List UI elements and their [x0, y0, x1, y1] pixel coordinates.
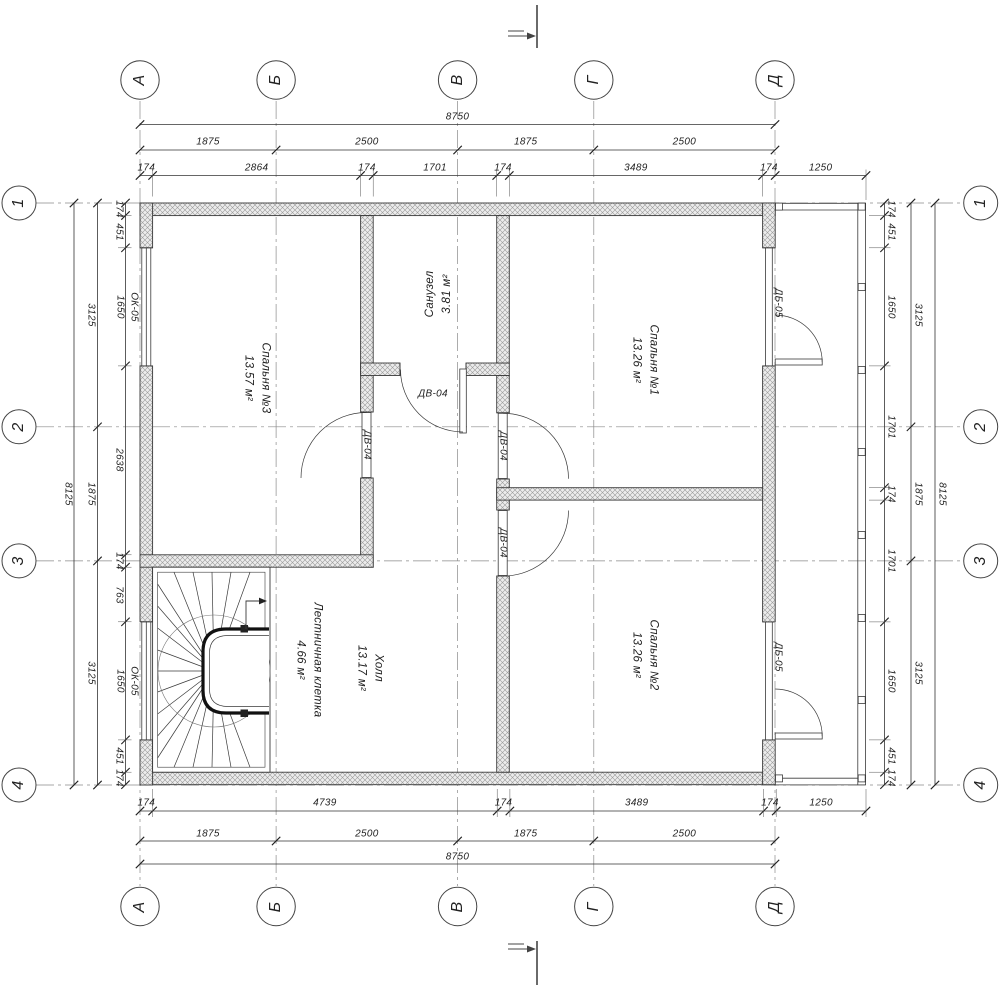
dim-left-span-0: 3125: [86, 303, 97, 326]
section-mark-top-icon: [508, 5, 537, 48]
balcony-door-tag-1: ДБ-05: [772, 288, 783, 318]
window-tag-bottom: ОК-05 1650: [113, 666, 140, 696]
section-mark-bottom-icon: [508, 941, 537, 985]
room-name: Спальня №1: [644, 325, 661, 396]
room-label-bedroom2: Спальня №2 13.26 м²: [627, 620, 662, 691]
floor-plan-svg: [0, 0, 1000, 989]
room-area: 13.17 м²: [352, 645, 369, 691]
axis-bubble-col-g-top: Г: [585, 75, 603, 84]
axis-bubble-row-2-left: 2: [10, 422, 28, 431]
dim-top-chain-6: 174: [760, 163, 778, 174]
door-tag-bedroom2: ДВ-04: [498, 528, 509, 558]
stair-post-bottom: [241, 710, 249, 718]
balcony-door-2: [763, 622, 823, 740]
wall-hall-a: [497, 216, 510, 363]
balcony-railing: [775, 203, 865, 785]
stair: [153, 567, 270, 772]
dim-left-span-1: 1875: [86, 482, 97, 505]
dim-right-span-1: 1875: [912, 482, 923, 505]
axis-bubble-row-1-right: 1: [972, 198, 990, 207]
window-left-top: [140, 248, 153, 366]
axis-bubble-col-d-bottom: Д: [766, 901, 784, 913]
dim-top-span-2: 1875: [514, 137, 537, 148]
dim-right-chain-6: 1650: [886, 669, 897, 692]
window-tag-top-mark: ОК-05: [127, 292, 141, 322]
dim-top-chain-3: 1701: [423, 163, 446, 174]
room-area: 4.66 м²: [291, 603, 308, 718]
axis-bubble-col-v-bottom: В: [449, 901, 467, 912]
room-label-stairwell: Лестничная клетка 4.66 м²: [291, 603, 326, 718]
axis-bubble-col-b-top: Б: [267, 75, 285, 86]
axis-bubble-row-2-right: 2: [972, 422, 990, 431]
dim-top-span-0: 1875: [196, 137, 219, 148]
dim-left-chain-5: 763: [113, 586, 124, 604]
window-tag-bottom-width: 1650: [113, 666, 127, 696]
door-tag-bedroom1: ДВ-04: [498, 431, 509, 461]
wall-bath-a: [361, 363, 400, 376]
dim-right-span-0: 3125: [912, 303, 923, 326]
room-area: 13.26 м²: [627, 325, 644, 396]
dim-left-chain-1: 451: [113, 223, 124, 241]
dim-left-overall: 8125: [62, 482, 73, 505]
wall-hall-b: [497, 376, 510, 413]
dim-bottom-span-2: 1875: [514, 828, 537, 839]
axis-bubble-col-g-bottom: Г: [585, 902, 603, 911]
railing-posts: [776, 203, 866, 782]
dim-top-chain-4: 174: [494, 163, 512, 174]
floor-plan-sheet: А Б В Г Д А Б В Г Д 1 2 3 4 1 2 3 4 8750…: [0, 0, 1000, 989]
dim-left-chain-7: 451: [113, 747, 124, 765]
room-name: Спальня №2: [644, 620, 661, 691]
dim-left-chain-3: 2638: [113, 449, 124, 472]
dim-top-chain-0: 174: [138, 163, 156, 174]
wall-right-c: [763, 740, 776, 785]
dim-bottom-chain-4: 174: [761, 798, 779, 809]
wall-left-c: [140, 740, 153, 785]
stair-post-top: [241, 625, 249, 633]
wall-right-b: [763, 366, 776, 622]
wall-bedroom3-a: [361, 216, 374, 412]
dim-left-chain-0: 174: [113, 200, 124, 218]
room-area: 13.26 м²: [627, 620, 644, 691]
dim-bottom-chain-5: 1250: [809, 798, 832, 809]
dim-top-chain-1: 2864: [245, 163, 268, 174]
dim-bottom-span-0: 1875: [196, 828, 219, 839]
wall-hall-d: [497, 576, 510, 772]
room-label-bathroom: Санузел 3.81 м²: [421, 271, 456, 318]
window-tag-top: ОК-05 1650: [113, 292, 140, 322]
axis-bubble-col-d-top: Д: [766, 74, 784, 86]
wall-bottom: [140, 772, 775, 785]
window-tag-bottom-mark: ОК-05: [127, 666, 141, 696]
dim-bottom-overall: 8750: [446, 851, 469, 862]
room-name: Холл: [369, 645, 386, 691]
room-name: Спальня №3: [256, 343, 273, 414]
dim-bottom-chain-1: 4739: [313, 798, 336, 809]
room-area: 13.57 м²: [239, 343, 256, 414]
room-label-hall: Холл 13.17 м²: [352, 645, 387, 691]
dim-right-chain-3: 1701: [886, 415, 897, 438]
balcony-door-tag-2: ДБ-05: [772, 642, 783, 672]
dim-right-chain-5: 1701: [886, 549, 897, 572]
dim-top-chain-7: 1250: [809, 163, 832, 174]
dim-bottom-chain-3: 3489: [625, 798, 648, 809]
dim-right-chain-2: 1650: [886, 295, 897, 318]
axis-bubble-row-4-left: 4: [10, 780, 28, 789]
dim-bottom-span-1: 2500: [355, 828, 378, 839]
wall-left-b: [140, 366, 153, 622]
dim-right-chain-1: 451: [886, 223, 897, 241]
dim-right-overall: 8125: [936, 482, 947, 505]
dim-top-chain-2: 174: [358, 163, 376, 174]
dim-top-overall: 8750: [446, 112, 469, 123]
room-area: 3.81 м²: [439, 271, 456, 318]
axis-bubble-row-1-left: 1: [10, 198, 28, 207]
dim-left-chain-8: 174: [113, 770, 124, 788]
axis-bubble-row-3-right: 3: [972, 556, 990, 565]
dim-bottom-chain-0: 174: [138, 798, 156, 809]
room-label-bedroom1: Спальня №1 13.26 м²: [627, 325, 662, 396]
wall-bedrooms-divider: [497, 488, 763, 500]
dim-top-span-3: 2500: [673, 137, 696, 148]
dim-bottom-span-3: 2500: [673, 828, 696, 839]
dim-right-span-2: 3125: [912, 661, 923, 684]
wall-left-a: [140, 203, 153, 248]
window-tag-top-width: 1650: [113, 292, 127, 322]
dim-right-chain-8: 174: [886, 770, 897, 788]
dim-top-chain-5: 3489: [624, 163, 647, 174]
dim-top-span-1: 2500: [355, 137, 378, 148]
wall-bedroom3-bottom: [140, 555, 373, 567]
dim-left-chain-4: 174: [113, 552, 124, 570]
dim-bottom-chain-2: 174: [495, 798, 513, 809]
axis-bubble-col-v-top: В: [449, 75, 467, 86]
dim-right-chain-4: 174: [886, 485, 897, 503]
window-left-bottom: [140, 622, 153, 740]
door-tag-bathroom: ДВ-04: [418, 388, 448, 399]
axis-bubble-col-b-bottom: Б: [267, 901, 285, 912]
wall-right-a: [763, 203, 776, 248]
room-name: Лестничная клетка: [308, 603, 325, 718]
dim-right-chain-0: 174: [886, 200, 897, 218]
axis-bubble-col-a-top: А: [131, 75, 149, 86]
room-name: Санузел: [421, 271, 438, 318]
wall-bedroom3-b: [361, 478, 374, 567]
wall-top: [140, 203, 775, 216]
door-tag-bedroom3: ДВ-04: [361, 430, 372, 460]
axis-bubble-col-a-bottom: А: [131, 901, 149, 912]
axis-bubble-row-3-left: 3: [10, 556, 28, 565]
wall-bath-b: [466, 363, 509, 376]
dim-right-chain-7: 451: [886, 747, 897, 765]
dim-left-span-2: 3125: [86, 661, 97, 684]
axis-bubble-row-4-right: 4: [972, 780, 990, 789]
room-label-bedroom3: Спальня №3 13.57 м²: [239, 343, 274, 414]
